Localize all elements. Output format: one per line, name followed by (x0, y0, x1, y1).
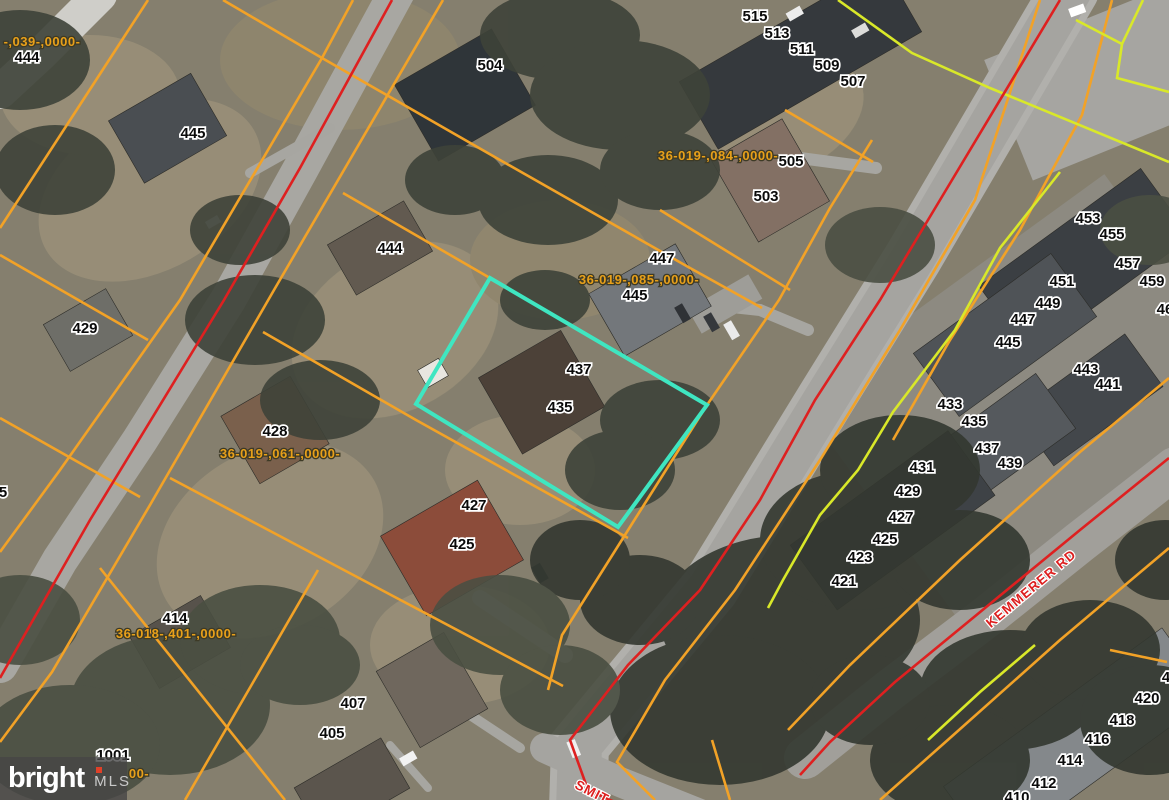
parcel-map: 4444455045155135115095075055034444474454… (0, 0, 1169, 800)
house-number-label: 444 (377, 240, 403, 257)
watermark-brand: bright (8, 764, 84, 793)
house-number-label: 427 (888, 509, 913, 526)
house-number-label: 513 (764, 25, 789, 42)
house-number-label: 515 (742, 8, 767, 25)
parcel-id-label: 36-018-,401-,0000- (116, 626, 236, 641)
house-number-label: 414 (1057, 752, 1083, 769)
house-number-label: 425 (872, 531, 897, 548)
house-number-label: 428 (262, 423, 287, 440)
parcel-id-label: 36-019-,061-,0000- (220, 446, 340, 461)
house-number-label: 427 (461, 497, 486, 514)
house-number-label: 511 (790, 41, 814, 58)
house-number-label: 455 (1099, 226, 1124, 243)
house-number-label: 425 (449, 536, 474, 553)
house-number-label: 447 (1010, 311, 1035, 328)
parcel-id-label: 36-019-,085-,0000- (579, 272, 699, 287)
house-number-label: 435 (961, 413, 986, 430)
house-number-label: 433 (937, 396, 962, 413)
parcel-id-label: 00- (129, 766, 149, 781)
house-number-label: 444 (14, 49, 40, 66)
house-number-label: 437 (974, 440, 999, 457)
house-number-label: 416 (1084, 731, 1109, 748)
house-number-label: 429 (895, 483, 920, 500)
house-number-label: 420 (1134, 690, 1159, 707)
house-number-label: 429 (72, 320, 97, 337)
watermark-red-dot-icon (96, 767, 102, 773)
house-number-label: 423 (847, 549, 872, 566)
house-number-label: 414 (162, 610, 188, 627)
house-number-label: 451 (1049, 273, 1074, 290)
house-number-label: 439 (997, 455, 1022, 472)
house-number-label: 412 (1031, 775, 1056, 792)
house-number-label: 4 (1162, 669, 1169, 686)
house-number-label: 46 (1157, 301, 1169, 318)
parcel-id-label: 36-019-,084-,0000- (658, 148, 778, 163)
house-number-label: 449 (1035, 295, 1060, 312)
parcel-id-label: -,039-,0000- (4, 34, 81, 49)
house-number-label: 445 (622, 287, 647, 304)
house-number-label: 435 (547, 399, 572, 416)
house-number-label: 503 (753, 188, 778, 205)
house-number-label: 410 (1004, 789, 1029, 800)
house-number-label: 5 (0, 484, 7, 501)
house-number-label: 504 (477, 57, 503, 74)
house-number-label: 507 (840, 73, 865, 90)
brightmls-watermark: bright MLS (0, 757, 127, 800)
house-number-label: 418 (1109, 712, 1134, 729)
house-number-label: 509 (814, 57, 839, 74)
watermark-suffix: MLS (94, 773, 131, 790)
house-number-label: 441 (1095, 376, 1120, 393)
house-number-label: 421 (831, 573, 856, 590)
house-number-label: 407 (340, 695, 365, 712)
house-number-label: 505 (778, 153, 803, 170)
house-number-label: 431 (909, 459, 934, 476)
house-number-label: 447 (649, 250, 674, 267)
house-number-label: 445 (995, 334, 1020, 351)
aerial-map-canvas: 4444455045155135115095075055034444474454… (0, 0, 1169, 800)
house-number-label: 453 (1075, 210, 1100, 227)
house-number-label: 437 (566, 361, 591, 378)
house-number-label: 445 (180, 125, 205, 142)
house-number-label: 457 (1115, 255, 1140, 272)
house-number-label: 405 (319, 725, 344, 742)
house-number-label: 459 (1139, 273, 1164, 290)
